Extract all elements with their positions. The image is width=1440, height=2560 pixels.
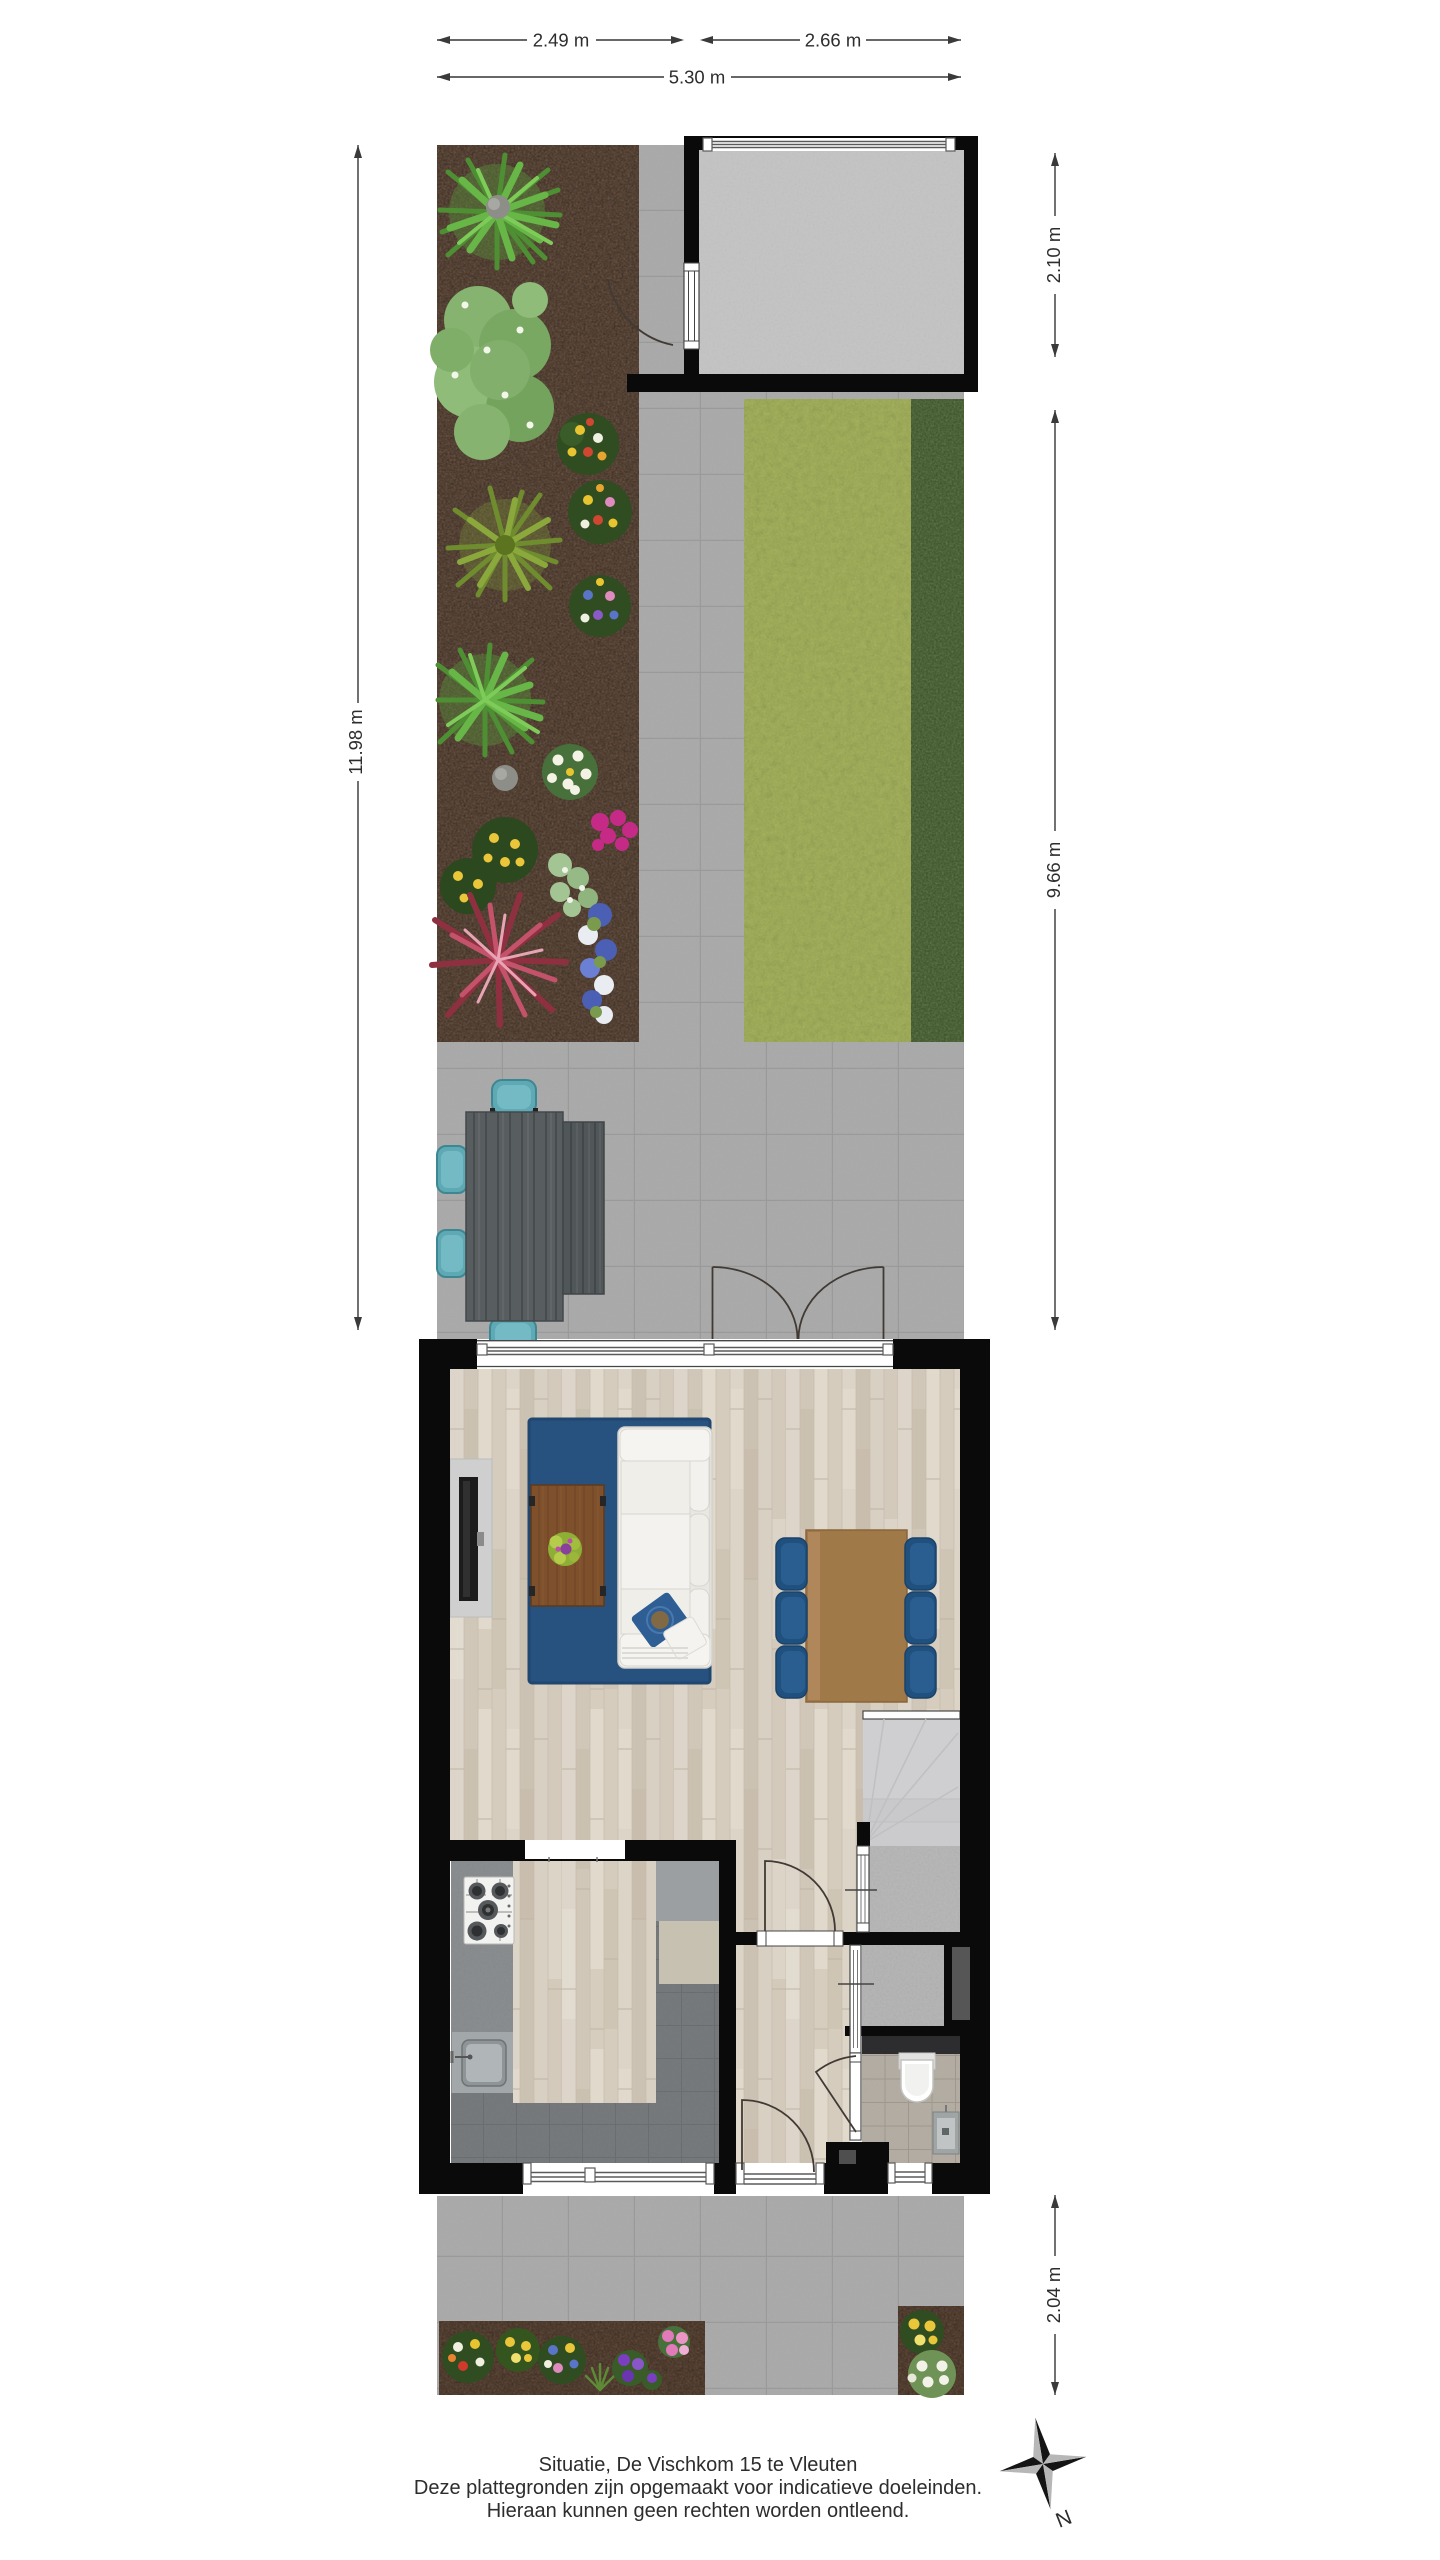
svg-text:2.10 m: 2.10 m (1043, 227, 1064, 284)
svg-text:9.66 m: 9.66 m (1043, 842, 1064, 899)
svg-text:2.66 m: 2.66 m (805, 30, 862, 51)
svg-text:Hieraan kunnen geen rechten wo: Hieraan kunnen geen rechten worden ontle… (487, 2500, 910, 2522)
svg-text:2.04 m: 2.04 m (1043, 2267, 1064, 2324)
svg-text:Situatie, De Vischkom 15 te Vl: Situatie, De Vischkom 15 te Vleuten (539, 2454, 858, 2476)
svg-text:11.98 m: 11.98 m (345, 709, 366, 774)
svg-text:5.30 m: 5.30 m (669, 67, 726, 88)
svg-text:Deze plattegronden zijn opgema: Deze plattegronden zijn opgemaakt voor i… (414, 2477, 982, 2499)
svg-text:2.49 m: 2.49 m (533, 30, 590, 51)
